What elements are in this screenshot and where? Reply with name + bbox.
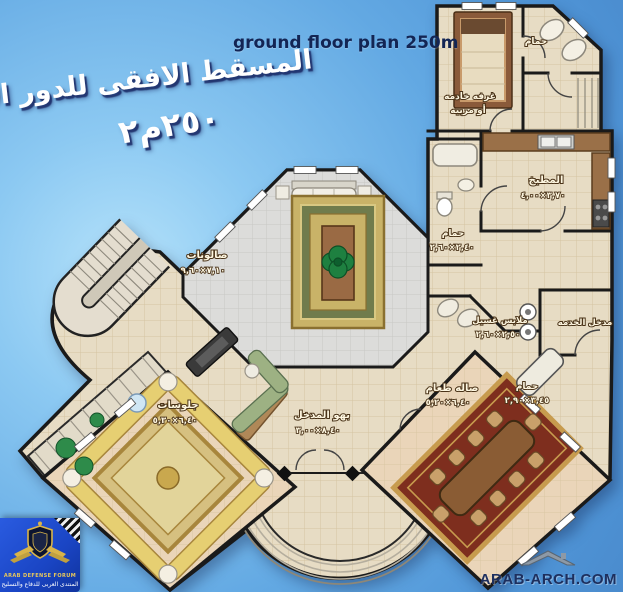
dims-entrance-hall: ٨,٤٠×٣,٠٠ bbox=[296, 426, 341, 436]
dims-dining: ٦,٤٠×٥,٢٠ bbox=[426, 398, 471, 408]
label-maid-room: غرفه خادمه bbox=[444, 92, 496, 102]
dims-kitchen: ٣,٧٠×٤,٠٠ bbox=[521, 191, 566, 201]
roof-logo-icon bbox=[509, 549, 587, 567]
label-maid-bath: حمام bbox=[525, 37, 548, 47]
stove-icon bbox=[593, 200, 609, 227]
label-salons: صالونات bbox=[186, 250, 227, 261]
logo-title: ARAB DEFENSE FORUM bbox=[0, 573, 80, 579]
watermark-text: ARAB-ARCH.COM bbox=[480, 571, 617, 588]
site-watermark: ARAB-ARCH.COM bbox=[480, 549, 617, 588]
sink-icon bbox=[538, 135, 574, 149]
label-sitting: جلوسات bbox=[157, 400, 198, 411]
logo-subtitle: المنتدى العربى للدفاع والتسليح bbox=[0, 581, 80, 588]
label-dining: صاله طعام bbox=[426, 383, 479, 394]
bathtub-icon bbox=[433, 144, 477, 166]
dims-salons: ٧,١٠×٩,٦٠ bbox=[181, 266, 226, 276]
toilet-icon bbox=[437, 192, 452, 216]
label-guest-bath: حمام bbox=[516, 382, 539, 392]
label-middle-bath: حمام bbox=[442, 229, 465, 239]
label-entrance-hall: بهو المدخل bbox=[294, 410, 350, 421]
side-table-icon bbox=[276, 186, 289, 199]
screenshot-stage: ground floor plan 250m المسقط الافقى للد… bbox=[0, 0, 623, 592]
label-kitchen: المطبخ bbox=[529, 175, 564, 186]
label-maid-room-2: أو مربيه bbox=[450, 104, 486, 116]
round-table-icon bbox=[245, 364, 259, 378]
shield-logo-icon bbox=[0, 520, 80, 564]
dims-laundry: ٢,٥٠×٢,٦٠ bbox=[476, 330, 521, 340]
forum-logo: ARAB DEFENSE FORUM المنتدى العربى للدفاع… bbox=[0, 518, 80, 592]
label-laundry: ملابس غسيل bbox=[472, 316, 527, 326]
washbasin-icon bbox=[458, 179, 474, 191]
label-service-entry: مدخل الخدمه bbox=[558, 318, 612, 328]
dims-middle-bath: ٢,٤٠×٢,٦٠ bbox=[430, 243, 475, 253]
dims-sitting: ٦,٤٠×٥,٣٠ bbox=[153, 416, 198, 426]
dims-guest-bath: ٣,٤٥×٢,٩٠ bbox=[505, 396, 550, 406]
